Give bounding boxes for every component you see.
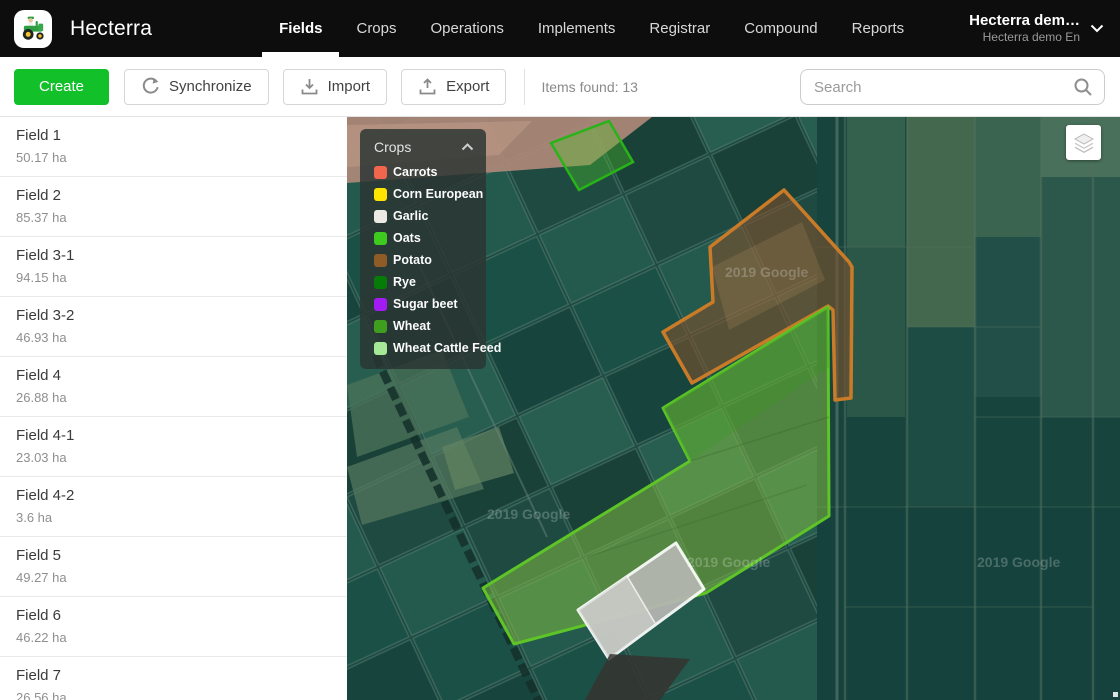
field-list-item[interactable]: Field 426.88 ha xyxy=(0,357,347,417)
field-area: 46.93 ha xyxy=(16,330,347,345)
map-watermark: 2019 Google xyxy=(725,264,808,280)
crops-legend-items: CarrotsCorn EuropeanGarlicOatsPotatoRyeS… xyxy=(360,161,486,359)
field-area: 26.56 ha xyxy=(16,690,347,700)
items-found-count: 13 xyxy=(622,79,638,95)
legend-row: Potato xyxy=(360,249,486,271)
map-strip-parcels xyxy=(817,117,1120,700)
crop-label: Rye xyxy=(393,275,416,289)
brand-title: Hecterra xyxy=(70,17,152,41)
account-subtitle: Hecterra demo En xyxy=(969,30,1080,45)
import-download-icon xyxy=(300,77,319,96)
field-area: 46.22 ha xyxy=(16,630,347,645)
tab-operations[interactable]: Operations xyxy=(414,0,521,57)
tab-fields[interactable]: Fields xyxy=(262,0,339,57)
crop-label: Carrots xyxy=(393,165,437,179)
top-bar: Hecterra FieldsCropsOperationsImplements… xyxy=(0,0,1120,57)
legend-row: Carrots xyxy=(360,161,486,183)
crop-label: Wheat xyxy=(393,319,431,333)
refresh-icon xyxy=(141,77,160,96)
crops-legend-title: Crops xyxy=(374,139,411,155)
tab-reports[interactable]: Reports xyxy=(835,0,922,57)
search-icon[interactable] xyxy=(1073,77,1093,97)
crops-legend: Crops CarrotsCorn EuropeanGarlicOatsPota… xyxy=(360,129,486,369)
legend-row: Corn European xyxy=(360,183,486,205)
field-list: Field 150.17 haField 285.37 haField 3-19… xyxy=(0,117,347,700)
map-watermark: 2019 Google xyxy=(687,554,770,570)
map-canvas[interactable]: 2019 Google 2019 Google 2019 Google 2019… xyxy=(347,117,1120,700)
account-name: Hecterra dem… xyxy=(969,12,1080,30)
crop-color-swatch xyxy=(374,166,387,179)
items-found-label: Items found: xyxy=(541,79,618,95)
map-watermark: 2019 Google xyxy=(487,506,570,522)
field-list-item[interactable]: Field 4-23.6 ha xyxy=(0,477,347,537)
field-area: 23.03 ha xyxy=(16,450,347,465)
field-list-item[interactable]: Field 3-194.15 ha xyxy=(0,237,347,297)
tab-implements[interactable]: Implements xyxy=(521,0,633,57)
search-box xyxy=(800,69,1105,105)
crop-color-swatch xyxy=(374,298,387,311)
tractor-icon xyxy=(18,14,48,44)
legend-row: Rye xyxy=(360,271,486,293)
legend-row: Wheat Cattle Feed xyxy=(360,337,486,359)
nav-tabs: FieldsCropsOperationsImplementsRegistrar… xyxy=(262,0,921,57)
toolbar-divider xyxy=(524,69,525,105)
account-menu[interactable]: Hecterra dem… Hecterra demo En xyxy=(969,12,1104,45)
search-input[interactable] xyxy=(801,79,1073,96)
field-name: Field 7 xyxy=(16,667,347,684)
crop-color-swatch xyxy=(374,320,387,333)
legend-row: Wheat xyxy=(360,315,486,337)
export-label: Export xyxy=(446,78,489,95)
crop-color-swatch xyxy=(374,254,387,267)
legend-row: Sugar beet xyxy=(360,293,486,315)
field-area: 26.88 ha xyxy=(16,390,347,405)
tab-compound[interactable]: Compound xyxy=(727,0,834,57)
chevron-up-icon[interactable] xyxy=(461,143,474,151)
field-area: 3.6 ha xyxy=(16,510,347,525)
layers-icon xyxy=(1073,132,1095,154)
field-name: Field 5 xyxy=(16,547,347,564)
field-area: 94.15 ha xyxy=(16,270,347,285)
map-watermark: 2019 Google xyxy=(977,554,1060,570)
toolbar: Create Synchronize Import Export Items f… xyxy=(0,57,1120,117)
field-list-item[interactable]: Field 3-246.93 ha xyxy=(0,297,347,357)
synchronize-label: Synchronize xyxy=(169,78,252,95)
crop-label: Corn European xyxy=(393,187,483,201)
legend-row: Garlic xyxy=(360,205,486,227)
tab-registrar[interactable]: Registrar xyxy=(632,0,727,57)
crop-label: Sugar beet xyxy=(393,297,458,311)
crop-label: Wheat Cattle Feed xyxy=(393,341,501,355)
field-list-item[interactable]: Field 4-123.03 ha xyxy=(0,417,347,477)
chevron-down-icon xyxy=(1090,24,1104,33)
crop-label: Potato xyxy=(393,253,432,267)
field-list-item[interactable]: Field 646.22 ha xyxy=(0,597,347,657)
field-name: Field 6 xyxy=(16,607,347,624)
app-logo[interactable] xyxy=(14,10,52,48)
items-found-status: Items found: 13 xyxy=(541,79,638,95)
tab-crops[interactable]: Crops xyxy=(339,0,413,57)
crop-color-swatch xyxy=(374,232,387,245)
map-layers-button[interactable] xyxy=(1066,125,1101,160)
crop-color-swatch xyxy=(374,210,387,223)
field-name: Field 4-2 xyxy=(16,487,347,504)
import-button[interactable]: Import xyxy=(283,69,388,105)
field-area: 85.37 ha xyxy=(16,210,347,225)
crop-label: Oats xyxy=(393,231,421,245)
field-list-item[interactable]: Field 726.56 ha xyxy=(0,657,347,700)
field-area: 50.17 ha xyxy=(16,150,347,165)
synchronize-button[interactable]: Synchronize xyxy=(124,69,269,105)
export-button[interactable]: Export xyxy=(401,69,506,105)
field-area: 49.27 ha xyxy=(16,570,347,585)
export-upload-icon xyxy=(418,77,437,96)
field-name: Field 3-2 xyxy=(16,307,347,324)
field-name: Field 3-1 xyxy=(16,247,347,264)
create-button[interactable]: Create xyxy=(14,69,109,105)
crop-color-swatch xyxy=(374,188,387,201)
field-name: Field 2 xyxy=(16,187,347,204)
crop-color-swatch xyxy=(374,342,387,355)
field-list-item[interactable]: Field 549.27 ha xyxy=(0,537,347,597)
field-name: Field 4 xyxy=(16,367,347,384)
import-label: Import xyxy=(328,78,371,95)
field-name: Field 4-1 xyxy=(16,427,347,444)
field-name: Field 1 xyxy=(16,127,347,144)
legend-row: Oats xyxy=(360,227,486,249)
field-list-item[interactable]: Field 285.37 ha xyxy=(0,177,347,237)
field-list-item[interactable]: Field 150.17 ha xyxy=(0,117,347,177)
crop-color-swatch xyxy=(374,276,387,289)
crop-label: Garlic xyxy=(393,209,428,223)
